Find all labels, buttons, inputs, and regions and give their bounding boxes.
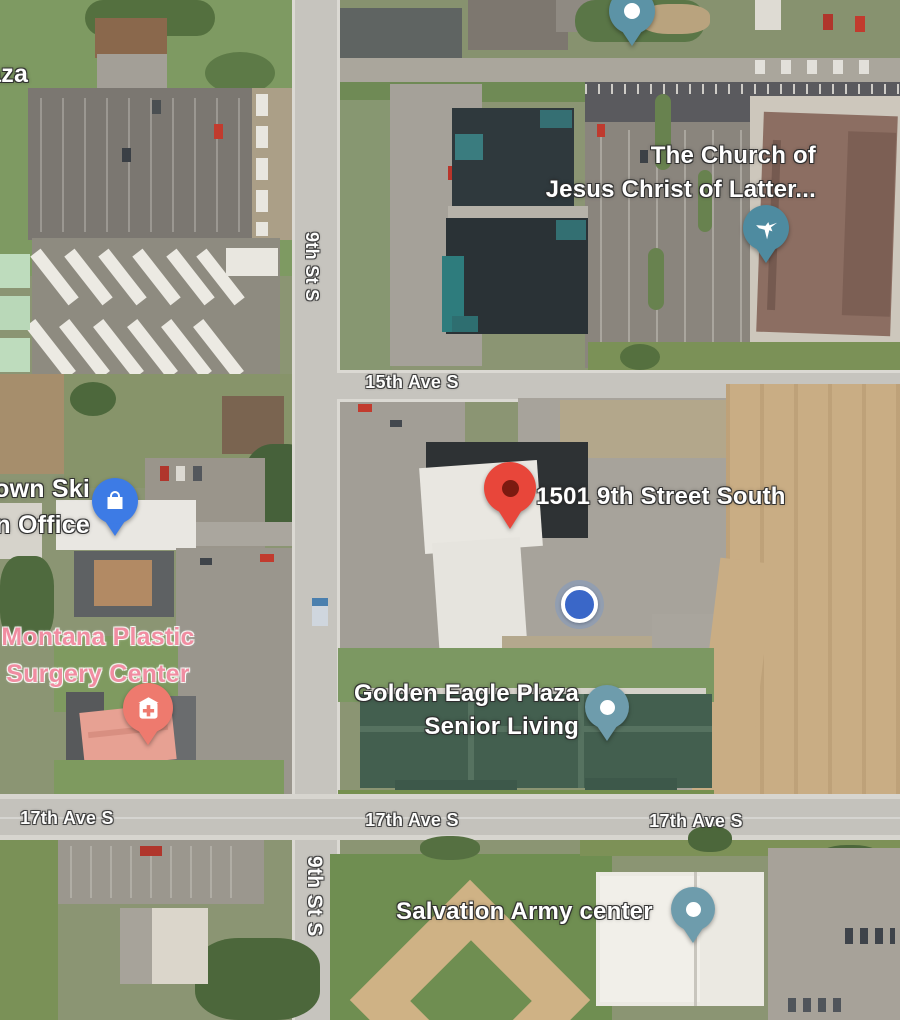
pin-head	[92, 478, 138, 524]
pin-head	[743, 205, 789, 251]
angel-moroni-icon	[752, 214, 780, 242]
pin-head	[585, 685, 629, 729]
markers-layer	[0, 0, 900, 1020]
golden-eagle-pin[interactable]	[585, 685, 629, 741]
destination-pin[interactable]	[484, 462, 536, 529]
salvation-army-pin[interactable]	[671, 887, 715, 943]
dot-icon	[686, 902, 701, 917]
pin-head	[123, 683, 173, 733]
blue-location-dot[interactable]	[561, 586, 598, 623]
shopping-pin[interactable]	[92, 478, 138, 536]
shopping-bag-icon	[103, 489, 127, 513]
pin-head	[484, 462, 536, 514]
dot-icon	[624, 3, 640, 19]
pin-inner-dot	[502, 480, 519, 497]
satellite-map[interactable]: laza own Ski n Office The Church of Jesu…	[0, 0, 900, 1020]
dot-icon	[600, 700, 615, 715]
pin-head	[671, 887, 715, 931]
hospital-icon	[135, 695, 162, 722]
pin-head	[609, 0, 655, 34]
medical-pin[interactable]	[123, 683, 173, 745]
poi-pin-top[interactable]	[609, 0, 655, 46]
church-pin[interactable]	[743, 205, 789, 263]
